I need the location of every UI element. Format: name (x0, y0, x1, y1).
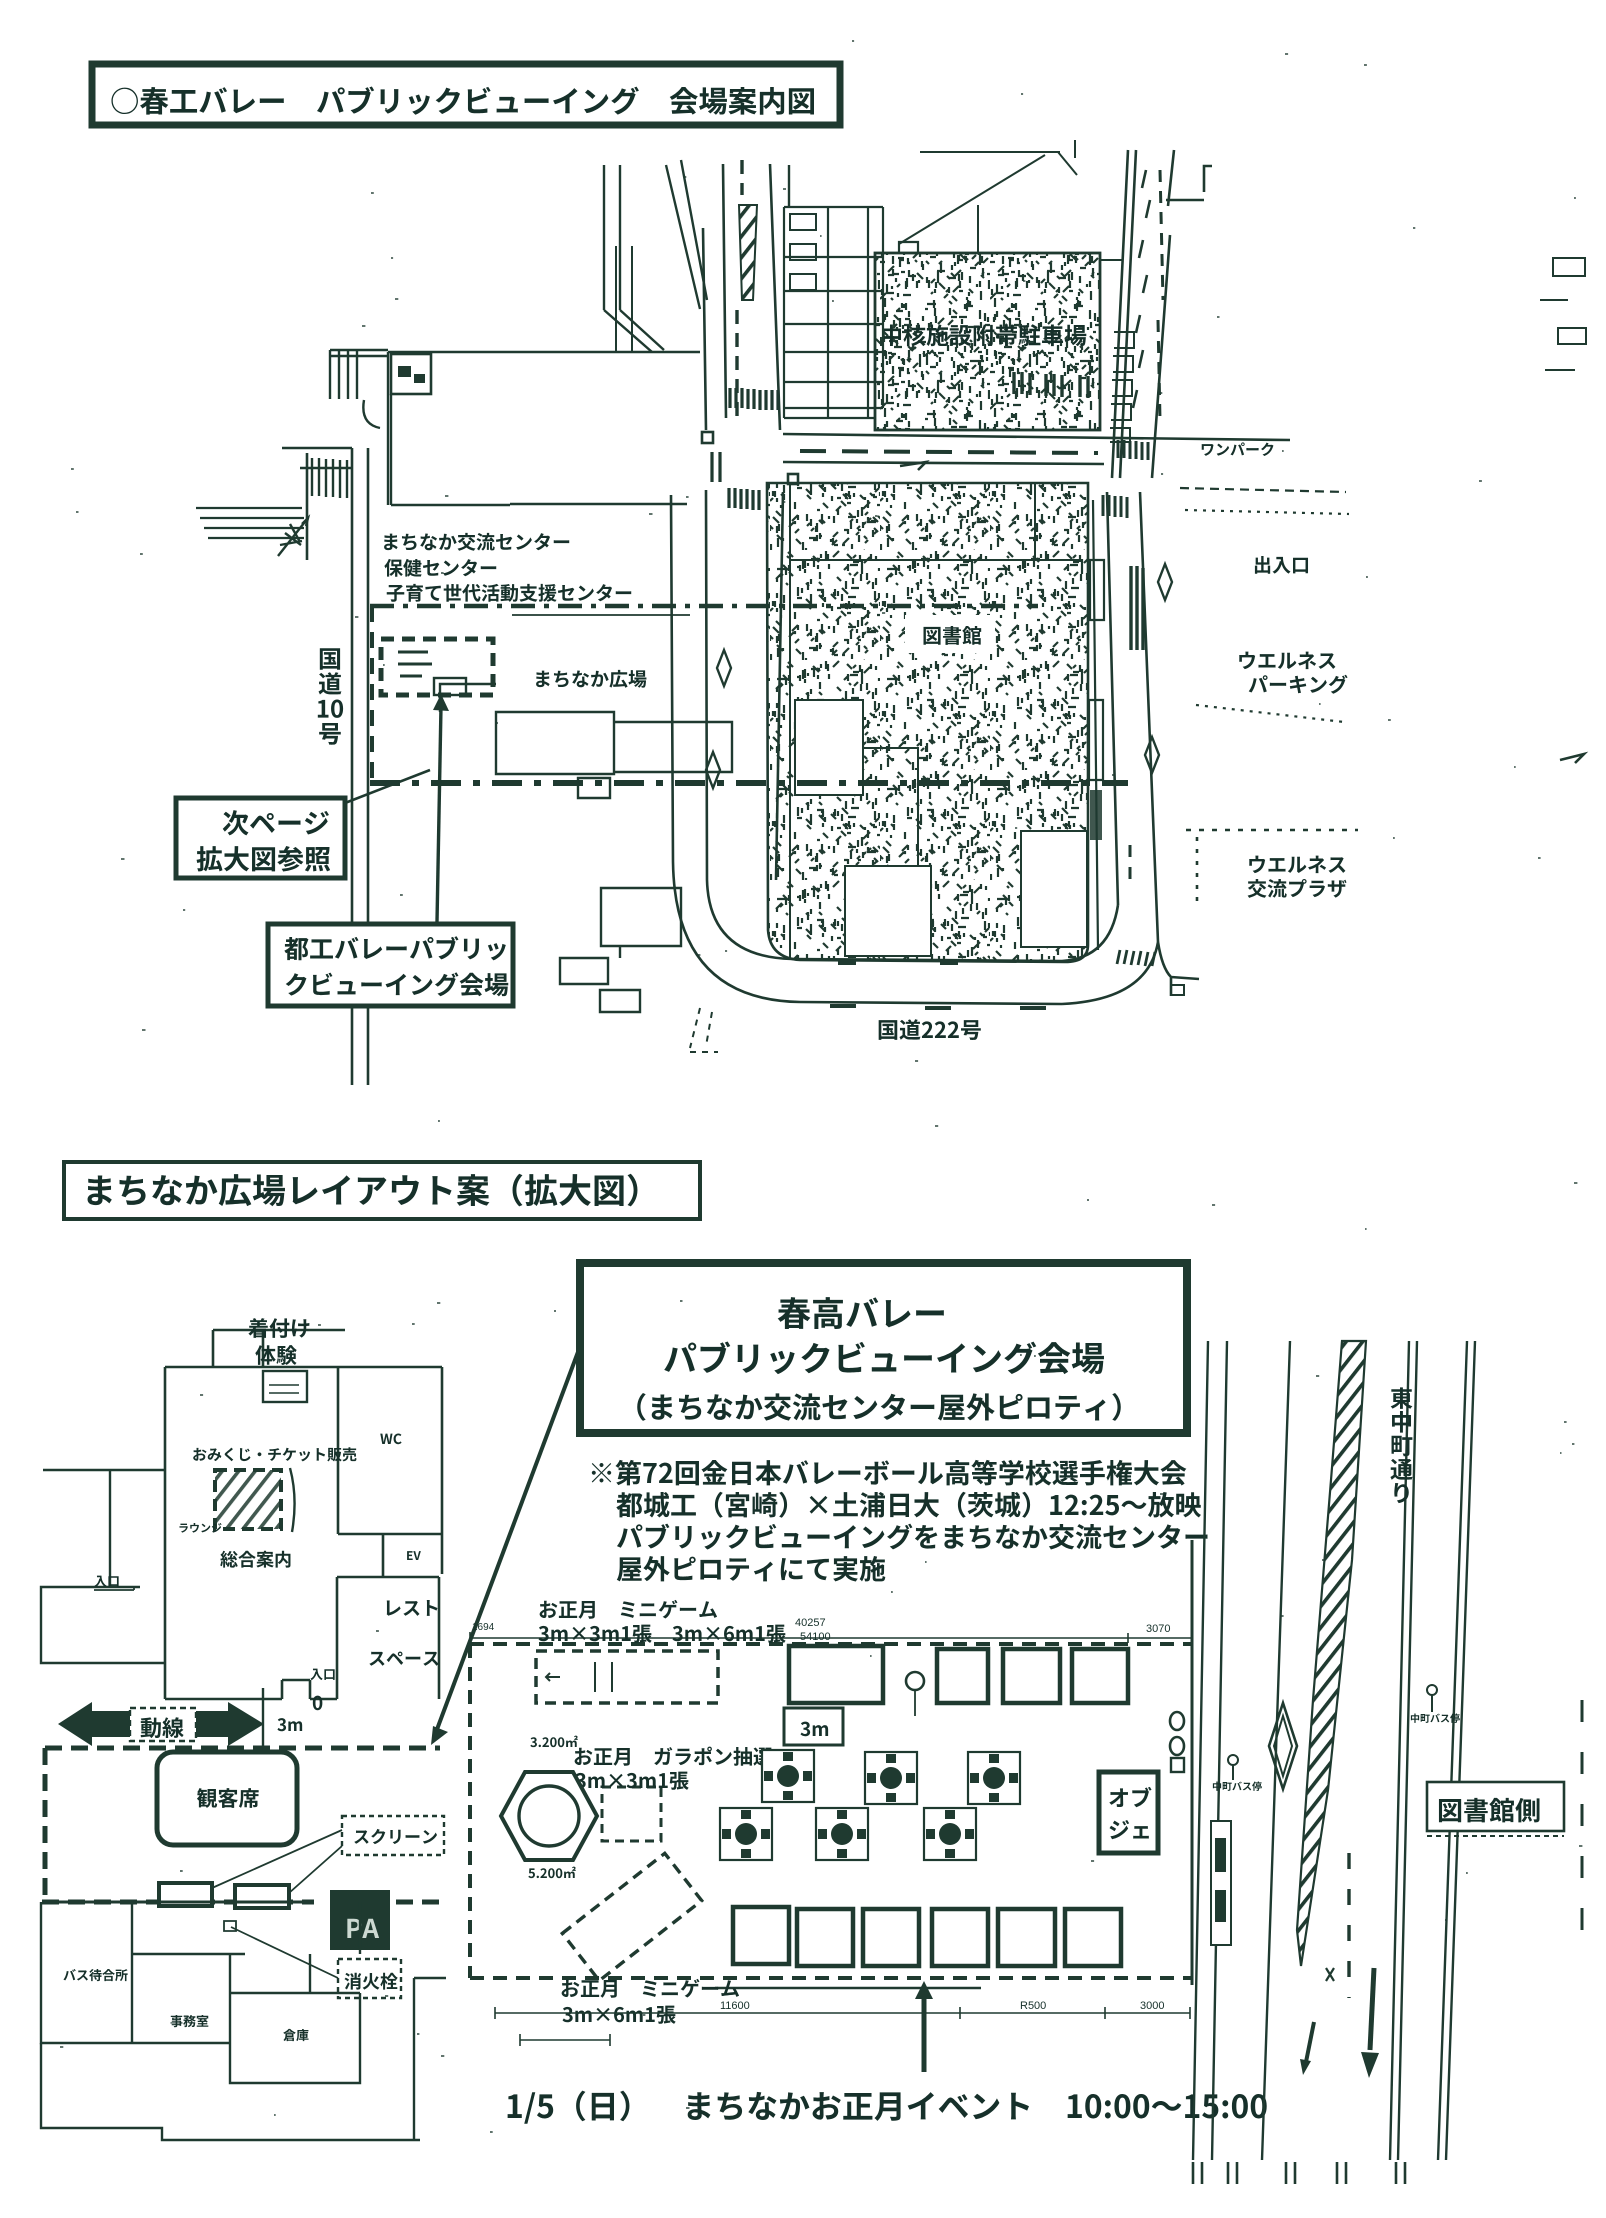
svg-text:3000: 3000 (1140, 2000, 1164, 2012)
svg-text:11600: 11600 (720, 2000, 750, 2012)
svg-text:54100: 54100 (800, 1631, 831, 1643)
svg-text:R500: R500 (1020, 2000, 1046, 2012)
svg-text:3070: 3070 (1146, 1623, 1170, 1635)
svg-text:1694: 1694 (472, 1622, 495, 1633)
svg-text:40257: 40257 (795, 1617, 826, 1629)
